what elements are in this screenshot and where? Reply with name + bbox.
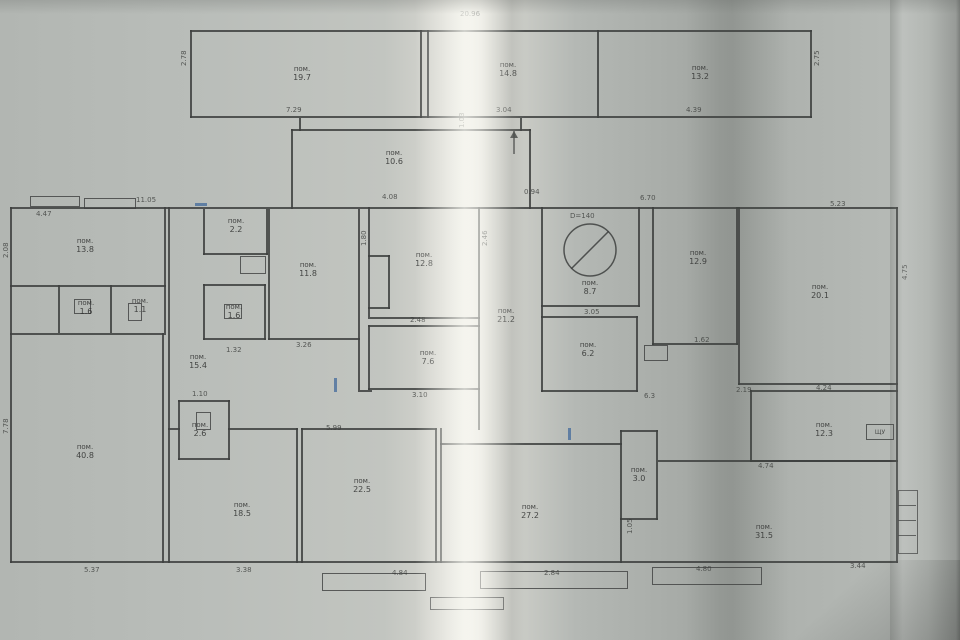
dimension-label: 5.23 [830,200,846,208]
dimension-label: 4.84 [392,569,408,577]
dimension-label: 0.94 [524,188,540,196]
dimension-label: 20.96 [460,10,480,18]
dimension-label: 1.62 [694,336,710,344]
dimension-label: 2.08 [2,242,10,258]
dimension-label: 3.04 [496,106,512,114]
dimension-label: 1.03 [458,112,466,128]
dimension-label: 2.84 [544,569,560,577]
dimension-label: 7.29 [286,106,302,114]
dimension-label: 1.10 [192,390,208,398]
dimension-label: D=140 [570,212,595,220]
dimension-label: 3.05 [584,308,600,316]
dimension-label: 4.39 [686,106,702,114]
dimension-label: 2.75 [813,50,821,66]
dims-layer: 20.967.293.044.392.782.754.081.0311.054.… [0,0,960,640]
dimension-label: 4.08 [382,193,398,201]
dimension-label: 6.70 [640,194,656,202]
dimension-label: 4.24 [816,384,832,392]
dimension-label: 1.05 [626,518,634,534]
dimension-label: 4.80 [696,565,712,573]
dimension-label: 1.32 [226,346,242,354]
dimension-label: 2.19 [736,386,752,394]
dimension-label: 2.78 [180,50,188,66]
dimension-label: 1.80 [360,230,368,246]
dimension-label: 4.75 [901,264,909,280]
dimension-label: 3.26 [296,341,312,349]
dimension-label: 5.99 [326,424,342,432]
dimension-label: 2.48 [410,316,426,324]
scanned-floor-plan: ЩУ пом.19.7пом.14.8пом.13.2пом.10.6пом.1… [0,0,960,640]
dimension-label: 3.44 [850,562,866,570]
dimension-label: 2.46 [481,230,489,246]
dimension-label: 11.05 [136,196,156,204]
dimension-label: 6.3 [644,392,655,400]
dimension-label: 7.78 [2,418,10,434]
dimension-label: 4.47 [36,210,52,218]
dimension-label: 3.38 [236,566,252,574]
dimension-label: 3.10 [412,391,428,399]
dimension-label: 5.37 [84,566,100,574]
dimension-label: 4.74 [758,462,774,470]
